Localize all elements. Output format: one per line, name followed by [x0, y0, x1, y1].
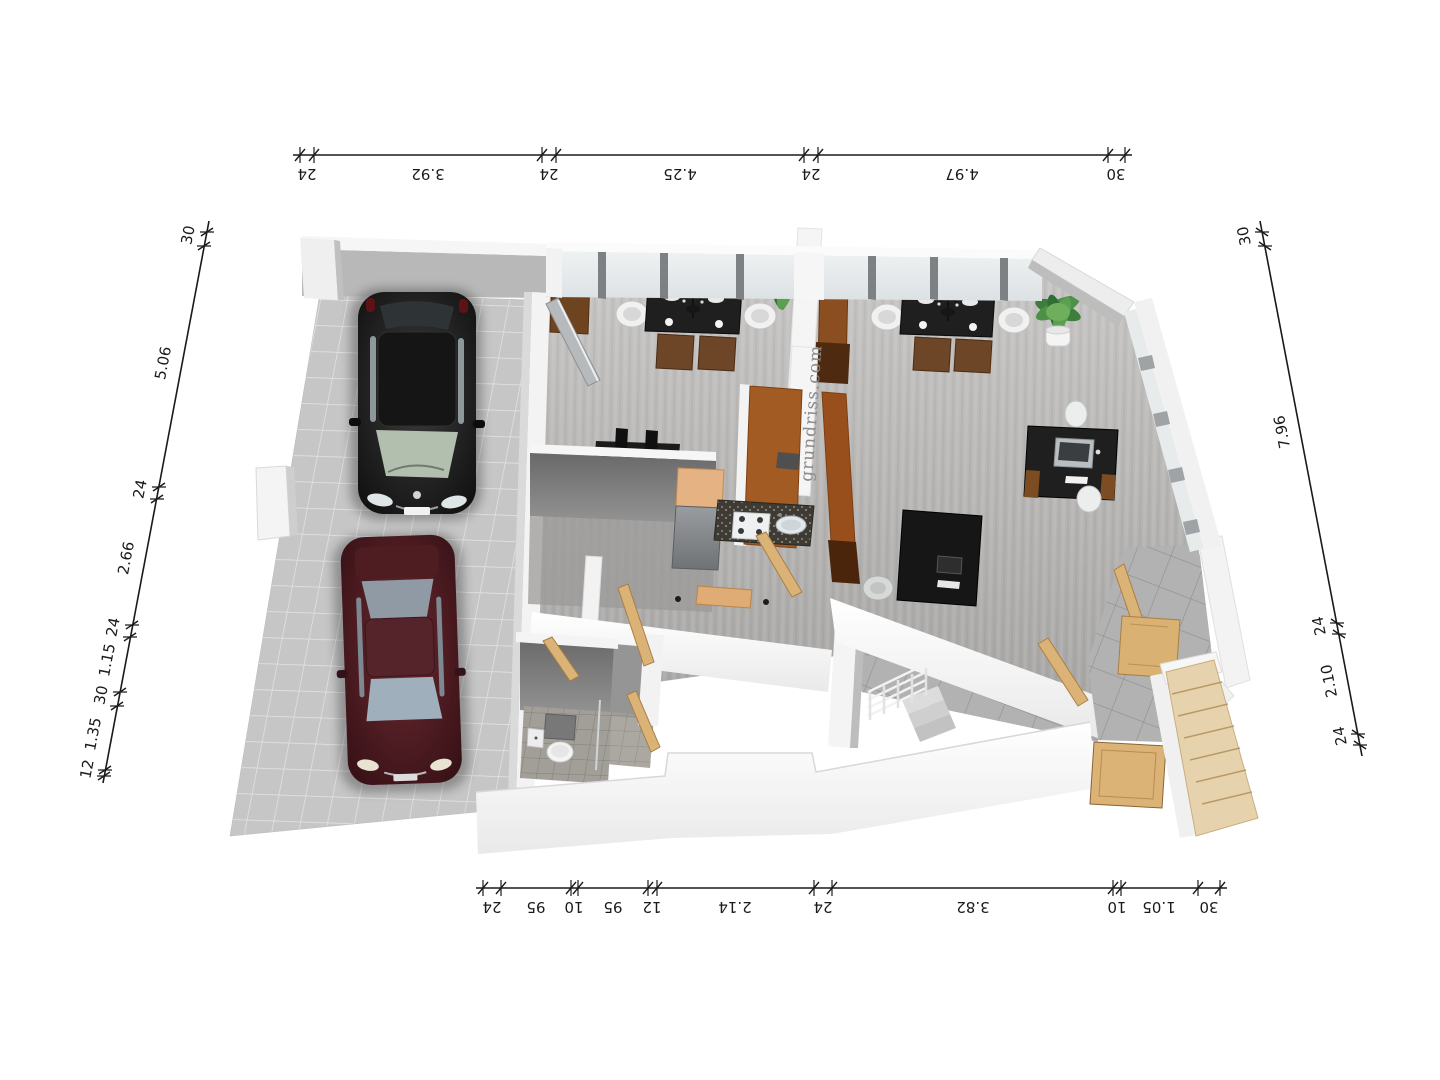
- windshield: [365, 677, 442, 722]
- dim-label: 30: [90, 684, 111, 706]
- window-mullion: [660, 253, 668, 299]
- wood-chair: [913, 337, 951, 372]
- car-roof: [365, 617, 435, 677]
- dim-label: 12: [76, 758, 97, 780]
- window-pier: [546, 248, 562, 298]
- divider-counter-base: [828, 540, 860, 584]
- dim-label: 95: [526, 898, 545, 916]
- top-dimension-labels: 24 3.92 24 4.25 24 4.97 30: [297, 165, 1125, 183]
- dim-label: 30: [1233, 225, 1254, 247]
- maroon-sedan: [332, 532, 471, 794]
- window-pier: [794, 252, 824, 300]
- faucet-icon: [778, 513, 782, 517]
- car-roof: [378, 332, 456, 426]
- dim-label: 10: [564, 898, 583, 916]
- nissan-badge-icon: [413, 491, 421, 499]
- toilet-tank: [544, 714, 576, 740]
- plate: [969, 323, 977, 331]
- window-mullion: [736, 254, 744, 300]
- floor-plan-canvas: grundriss.com 24 3.92 24: [0, 0, 1440, 1080]
- dim-label: 24: [1329, 725, 1350, 747]
- monitor: [615, 428, 628, 449]
- toilet-seat: [551, 745, 569, 758]
- side-mirror: [337, 670, 348, 678]
- dim-label: 3.82: [956, 898, 989, 916]
- paper: [1065, 476, 1088, 484]
- tail-light: [366, 298, 375, 312]
- dim-label: 24: [129, 478, 150, 500]
- dim-label: 30: [177, 224, 198, 246]
- left-dimension-line: [97, 221, 214, 783]
- side-window: [370, 336, 376, 422]
- window-mullion: [1000, 258, 1008, 301]
- carport-pillar: [256, 466, 290, 540]
- chair-seat: [1005, 313, 1023, 327]
- dim-label: 1.05: [1142, 898, 1175, 916]
- chair-seat: [870, 582, 886, 594]
- burner-icon: [738, 528, 744, 534]
- wood-chair: [954, 339, 992, 373]
- dim-label: 3.92: [411, 165, 444, 183]
- monitor: [937, 556, 962, 574]
- hall-cabinet-tan: [696, 586, 752, 608]
- bottom-dimension-line: [476, 880, 1227, 896]
- burner-icon: [739, 516, 745, 522]
- dim-label: 12: [642, 898, 661, 916]
- window-mullion: [598, 252, 606, 299]
- dim-line: [103, 221, 209, 783]
- floor-plan-rendering: grundriss.com 24 3.92 24: [0, 0, 1440, 1080]
- chair-seat: [751, 309, 769, 323]
- plate: [715, 320, 723, 328]
- monitor: [645, 430, 658, 451]
- window-mullion: [930, 257, 938, 300]
- decor-icon: [763, 599, 769, 605]
- side-mirror: [473, 420, 485, 428]
- dim-label: 24: [1308, 615, 1329, 637]
- side-window: [458, 338, 464, 424]
- top-dimension-line: [293, 147, 1132, 163]
- dim-label: 24: [297, 165, 316, 183]
- plate: [665, 318, 673, 326]
- dim-label: 24: [801, 165, 820, 183]
- dim-label: 24: [813, 898, 832, 916]
- imac-screen: [1058, 442, 1090, 462]
- license-plate: [404, 507, 430, 515]
- plant-pot-rim: [1046, 326, 1070, 334]
- rear-window: [380, 301, 454, 330]
- bottom-dimension-labels: 24 95 10 95 12 2.14 24 3.82 10 1.05 30: [482, 898, 1218, 916]
- dim-label: 24: [482, 898, 501, 916]
- trunk: [354, 545, 439, 580]
- wood-chair: [656, 334, 694, 370]
- mouse-icon: [1096, 450, 1101, 455]
- dim-label: 7.96: [1270, 414, 1294, 450]
- chair-seat: [623, 307, 641, 321]
- right-dimension-labels: 30 7.96 24 2.10 24: [1233, 225, 1350, 747]
- dim-label: 5.06: [151, 345, 175, 381]
- dim-label: 10: [1107, 898, 1126, 916]
- black-suv: [349, 288, 485, 520]
- window-mullion: [868, 256, 876, 300]
- chair: [1077, 486, 1101, 512]
- counter-appliance: [776, 452, 800, 470]
- decor-icon: [675, 596, 681, 602]
- dim-label: 30: [1106, 165, 1125, 183]
- side-mirror: [455, 668, 466, 676]
- kitchen-cabinet-tan: [676, 468, 724, 508]
- garage-left-wall: [300, 238, 338, 300]
- tail-light: [459, 299, 468, 313]
- dim-label: 2.66: [114, 540, 138, 576]
- dim-label: 4.97: [945, 165, 978, 183]
- dim-label: 1.15: [95, 642, 119, 678]
- left-dimension-labels: 30 5.06 24 2.66 24 1.15 30 1.35 12: [76, 224, 198, 780]
- basin-drain-icon: [535, 737, 538, 740]
- burner-icon: [757, 517, 763, 523]
- desk-leg-wood: [1100, 474, 1116, 500]
- chair-seat: [878, 310, 896, 324]
- sink-basin: [781, 520, 801, 531]
- right-dimension-line: [1255, 221, 1367, 756]
- desk-leg-wood: [1024, 470, 1040, 498]
- side-mirror: [349, 418, 361, 426]
- dim-label: 30: [1199, 898, 1218, 916]
- rear-window: [362, 579, 435, 619]
- dim-label: 4.25: [663, 165, 696, 183]
- dim-label: 24: [539, 165, 558, 183]
- dim-line: [1260, 221, 1362, 756]
- dim-label: 95: [603, 898, 622, 916]
- wood-chair: [698, 336, 736, 371]
- dim-label: 2.10: [1317, 663, 1341, 699]
- plate: [919, 321, 927, 329]
- dim-label: 24: [102, 616, 123, 638]
- license-plate: [393, 773, 417, 781]
- chair: [1065, 401, 1087, 427]
- dim-label: 2.14: [718, 898, 751, 916]
- dim-label: 1.35: [81, 716, 105, 752]
